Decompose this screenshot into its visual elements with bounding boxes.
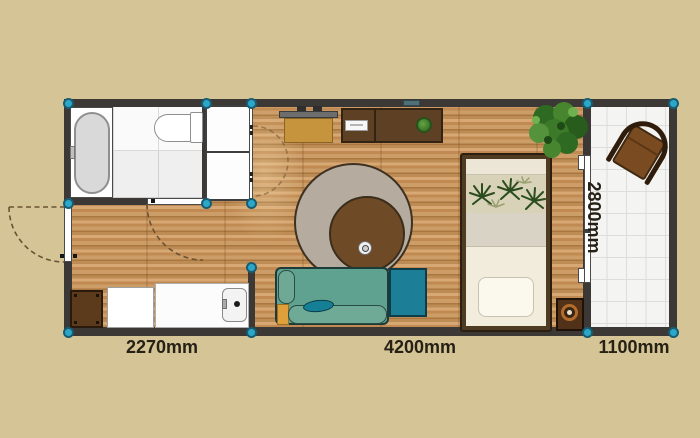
corner-node (668, 327, 679, 338)
floor-plan-canvas: 2270mm 4200mm 1100mm 2800mm (0, 0, 700, 438)
corner-node (246, 262, 257, 273)
corner-node (201, 98, 212, 109)
corner-node (246, 327, 257, 338)
corner-node (246, 98, 257, 109)
dimension-label-middle: 4200mm (360, 337, 480, 358)
dimension-label-left: 2270mm (102, 337, 222, 358)
dimension-label-right: 1100mm (574, 337, 694, 358)
corner-node (246, 198, 257, 209)
dimension-label-depth: 2800mm (585, 158, 604, 277)
corner-node (668, 98, 679, 109)
corner-node (582, 327, 593, 338)
corner-node (201, 198, 212, 209)
corner-node (63, 98, 74, 109)
corner-node (582, 98, 593, 109)
corner-node (63, 327, 74, 338)
corner-node (63, 198, 74, 209)
